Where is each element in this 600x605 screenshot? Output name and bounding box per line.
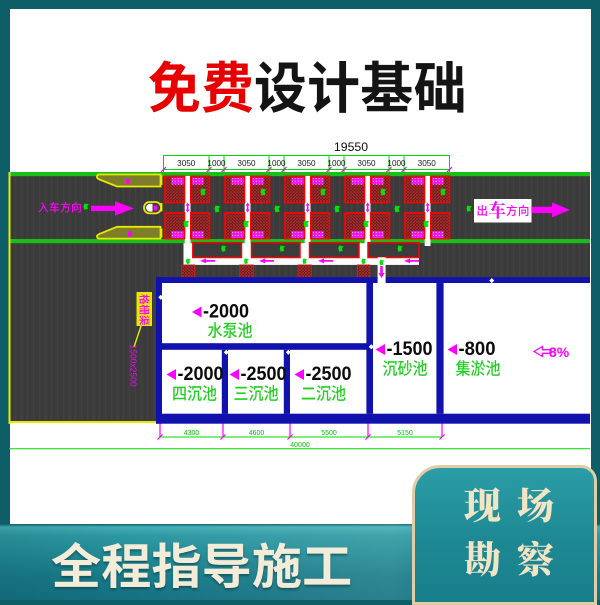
svg-text:3050: 3050 [237,159,256,168]
svg-text:1500x2500: 1500x2500 [129,345,139,387]
svg-text:8%: 8% [549,344,570,360]
svg-text:4600: 4600 [249,430,265,437]
svg-text:-800: -800 [459,338,496,360]
svg-text:5500: 5500 [321,430,337,437]
svg-text:-2000: -2000 [203,301,249,323]
svg-text:3050: 3050 [357,159,376,168]
svg-text:-2500: -2500 [241,363,287,385]
svg-text:3050: 3050 [418,159,437,168]
svg-text:-2000: -2000 [178,363,224,385]
svg-text:1000: 1000 [387,159,406,168]
svg-text:-1500: -1500 [387,338,433,360]
svg-text:1000: 1000 [267,159,286,168]
svg-text:-2500: -2500 [306,363,352,385]
svg-text:3050: 3050 [177,159,196,168]
svg-text:3050: 3050 [297,159,316,168]
svg-text:5150: 5150 [397,430,413,437]
svg-text:1000: 1000 [327,159,346,168]
svg-text:1000: 1000 [207,159,226,168]
svg-text:40000: 40000 [290,442,310,449]
svg-text:4300: 4300 [184,430,200,437]
svg-text:19550: 19550 [334,140,368,154]
